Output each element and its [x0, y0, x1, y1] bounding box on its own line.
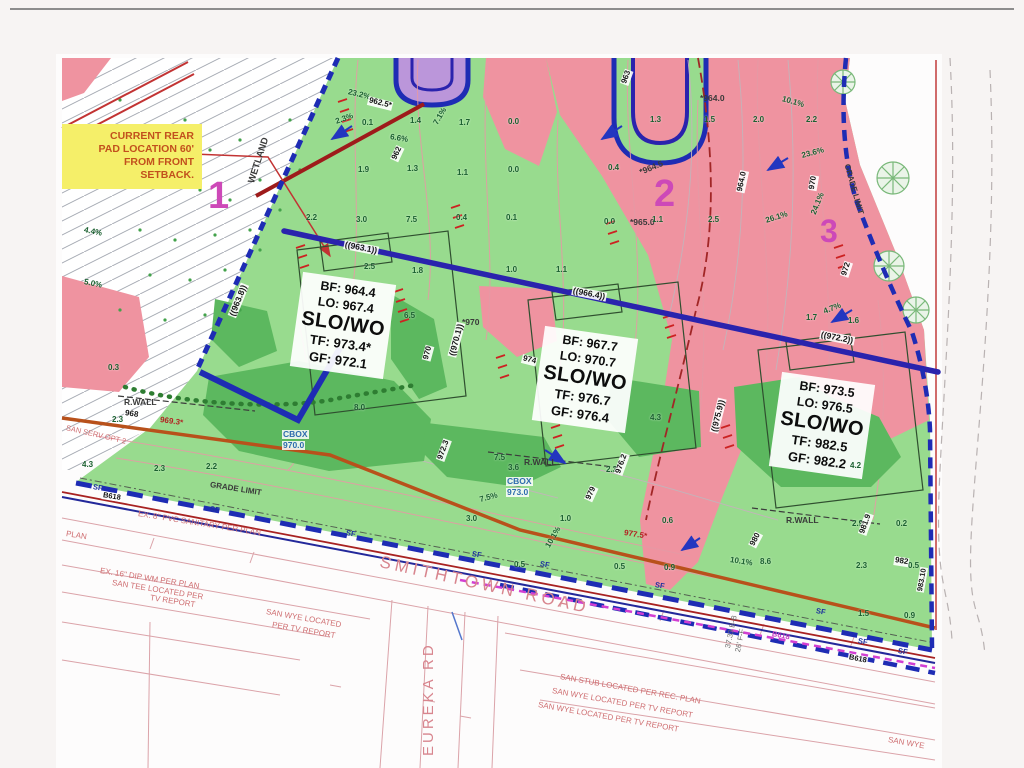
callout-line: CURRENT REAR [66, 130, 194, 143]
site-grading-plan: CURRENT REAR PAD LOCATION 60' FROM FRONT… [0, 0, 1024, 768]
callout-line: PAD LOCATION 60' [66, 143, 194, 156]
pad-elevation-callout-lot3: BF: 973.5 LO: 976.5 SLO/WO TF: 982.5 GF:… [769, 372, 875, 479]
road-label-eureka: EUREKA RD [420, 642, 437, 756]
pad-elevation-callout-lot2: BF: 967.7 LO: 970.7 SLO/WO TF: 976.7 GF:… [532, 326, 638, 433]
callout-line: SETBACK. [66, 169, 194, 182]
callout-line: FROM FRONT [66, 156, 194, 169]
pad-elevation-callout-lot1: BF: 964.4 LO: 967.4 SLO/WO TF: 973.4* GF… [290, 272, 396, 379]
callout-note: CURRENT REAR PAD LOCATION 60' FROM FRONT… [62, 124, 202, 189]
